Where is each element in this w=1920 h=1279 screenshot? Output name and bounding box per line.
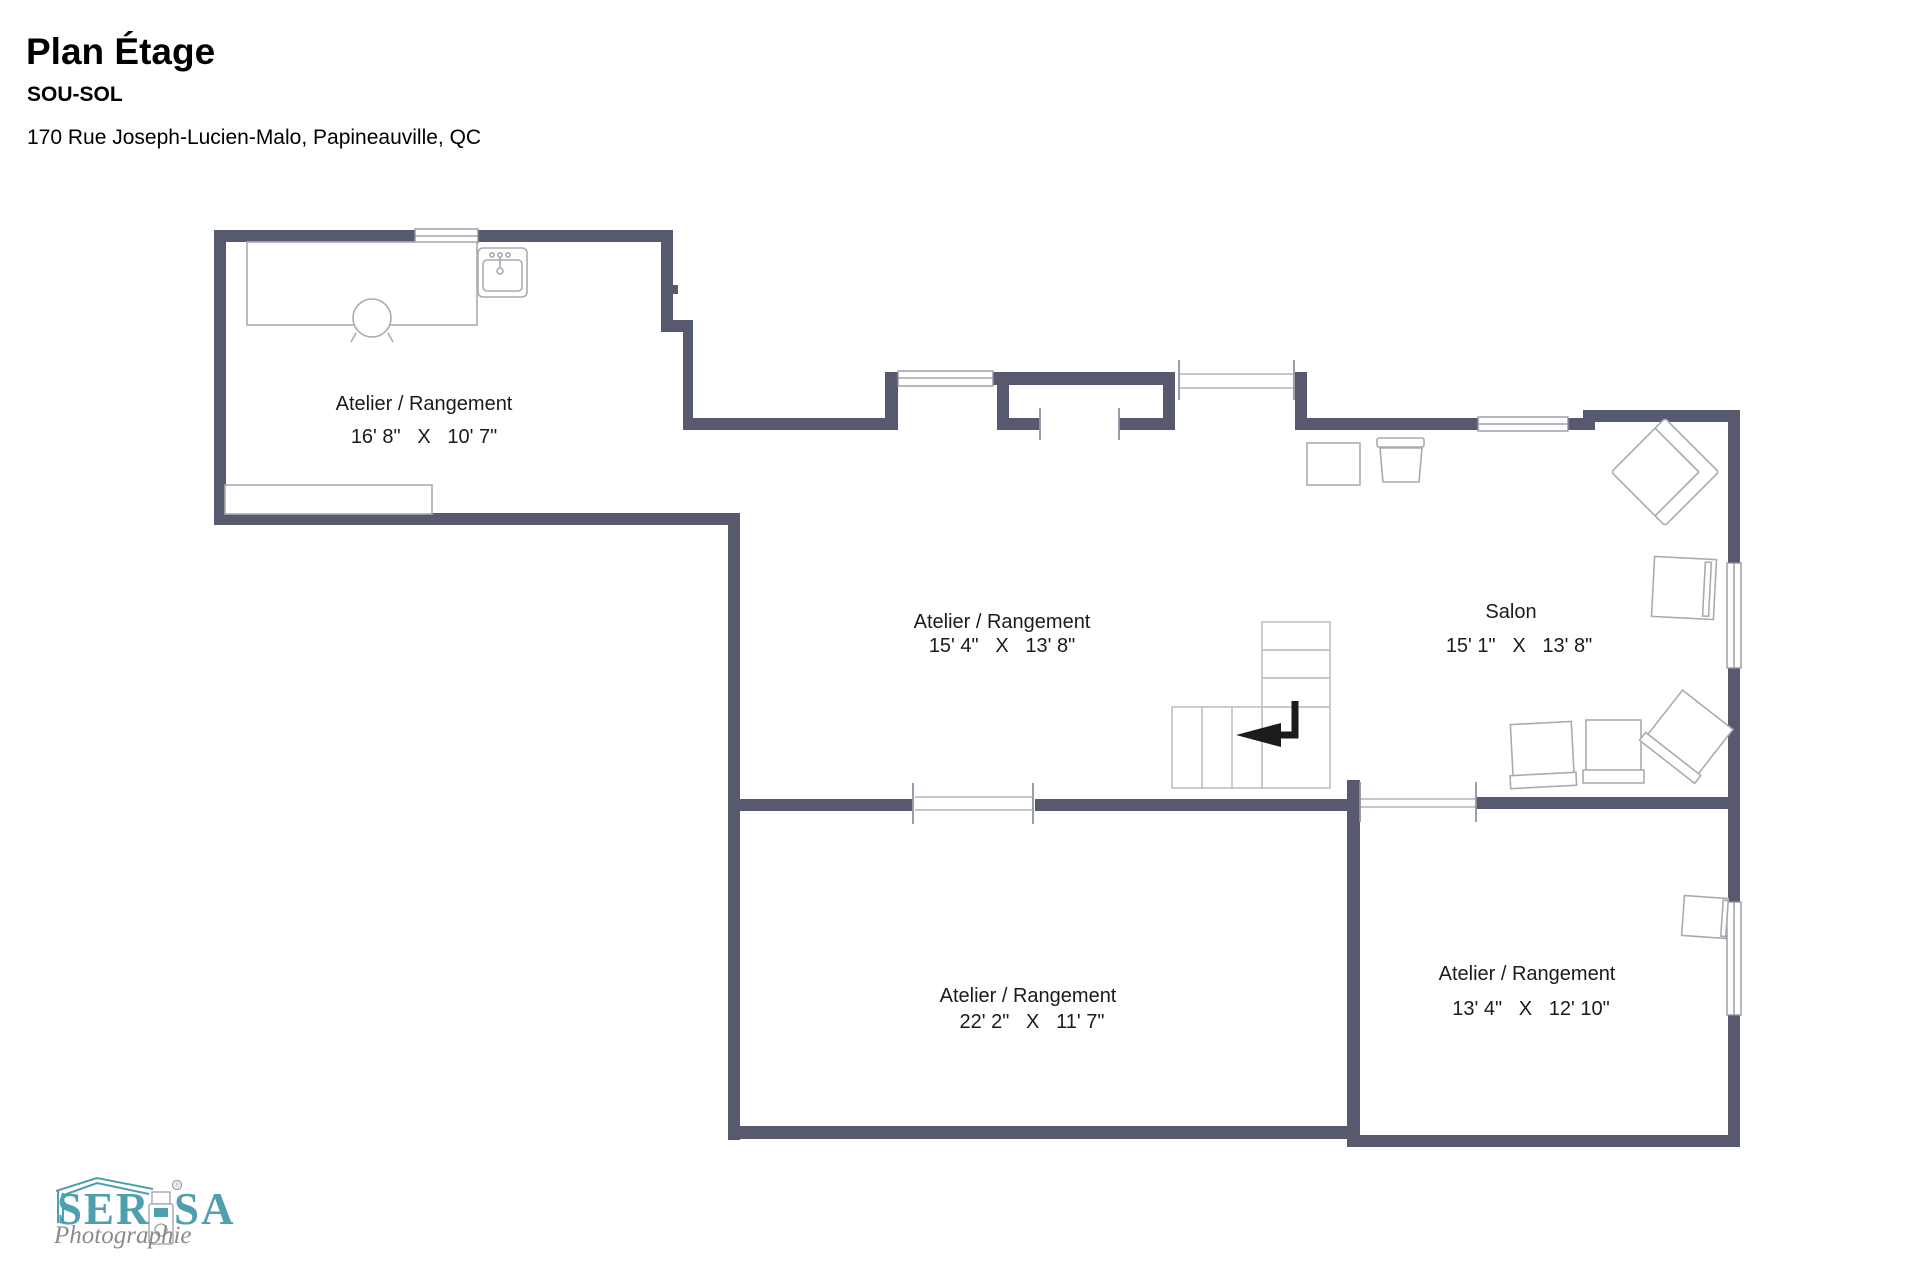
window-right-lower (1727, 902, 1741, 1015)
cased-opening-center-salon (1179, 360, 1294, 400)
room-dims-salon: 15' 1" X 13' 8" (1446, 635, 1592, 657)
side-table (1682, 896, 1729, 939)
room-labels: Atelier / Rangement 16' 8" X 10' 7" Atel… (336, 393, 1616, 1033)
room-label-atelier-se: Atelier / Rangement (1439, 963, 1616, 985)
counter-stool (351, 299, 393, 342)
room-dims-atelier-center: 15' 4" X 13' 8" (929, 635, 1075, 657)
room-dims-atelier-nw: 16' 8" X 10' 7" (351, 426, 497, 448)
tv-stand (1651, 556, 1716, 619)
salon-chair-left (1507, 721, 1576, 788)
brand-logo: SER SA ® Photographie (53, 1178, 236, 1249)
furniture (225, 242, 1735, 938)
room-label-atelier-center: Atelier / Rangement (914, 611, 1091, 633)
salon-chair-right (1583, 720, 1644, 783)
salon-sofa (1611, 418, 1718, 525)
property-address: 170 Rue Joseph-Lucien-Malo, Papineauvill… (27, 126, 481, 149)
storage-shelf (225, 485, 432, 514)
salon-ottoman (1307, 443, 1360, 485)
salon-corner-chair (1639, 688, 1735, 783)
room-label-salon: Salon (1485, 601, 1536, 623)
staircase (1172, 622, 1330, 788)
room-label-atelier-nw: Atelier / Rangement (336, 393, 513, 415)
closet-door-opening (1040, 408, 1119, 440)
logo-tagline: Photographie (53, 1222, 192, 1249)
kitchen-sink (478, 248, 527, 297)
registered-mark: ® (175, 1182, 181, 1190)
header: Plan Étage SOU-SOL 170 Rue Joseph-Lucien… (26, 31, 481, 149)
window-salon-top (1478, 417, 1568, 431)
page-title: Plan Étage (26, 31, 215, 72)
room-label-atelier-south: Atelier / Rangement (940, 985, 1117, 1007)
floor-subtitle: SOU-SOL (27, 83, 123, 106)
window-nw-top (415, 229, 478, 243)
window-right-upper (1727, 563, 1741, 668)
cased-opening-se-room (1360, 782, 1476, 822)
cased-opening-south-room (913, 783, 1033, 824)
room-dims-atelier-se: 13' 4" X 12' 10" (1452, 998, 1610, 1020)
room-dims-atelier-south: 22' 2" X 11' 7" (960, 1011, 1105, 1033)
salon-armchair (1377, 438, 1424, 482)
window-bay-top (898, 371, 993, 386)
floor-plan-canvas: Plan Étage SOU-SOL 170 Rue Joseph-Lucien… (0, 0, 1920, 1279)
